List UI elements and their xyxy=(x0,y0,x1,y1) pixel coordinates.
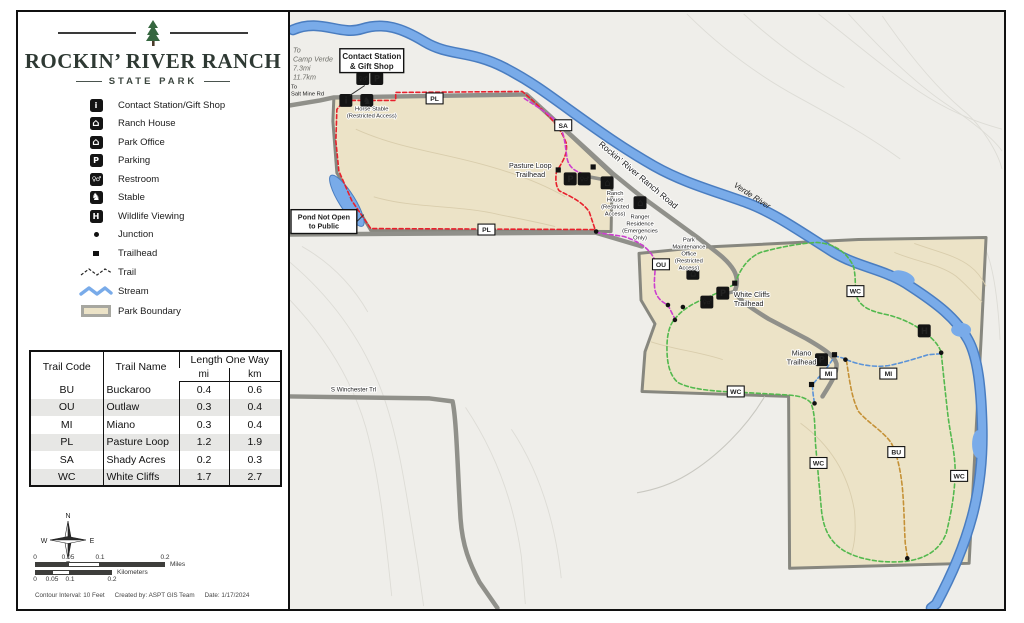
park-office-icon: ⌂ xyxy=(90,136,103,149)
contact-station-icon: i xyxy=(339,94,352,107)
svg-text:Contact Station: Contact Station xyxy=(342,52,401,61)
svg-text:PL: PL xyxy=(430,96,439,103)
junction-dot xyxy=(666,303,671,308)
legend-label: Park Office xyxy=(118,137,165,148)
legend-item-trail: Trail xyxy=(18,263,288,283)
junction-dot xyxy=(812,401,817,406)
svg-text:Only): Only) xyxy=(633,235,647,241)
svg-text:Camp Verde: Camp Verde xyxy=(293,56,333,64)
junction-dot xyxy=(594,229,599,234)
svg-text:MI: MI xyxy=(885,371,893,378)
svg-text:Residence: Residence xyxy=(626,222,653,228)
park-office-icon: ⌂ xyxy=(634,196,647,209)
trail-code: MI xyxy=(30,416,103,434)
trail-marker-wc: WC xyxy=(951,470,968,481)
trail-mi: 0.4 xyxy=(179,381,229,399)
legend-label: Park Boundary xyxy=(118,306,181,317)
trail-marker-wc: WC xyxy=(810,458,827,469)
created-by: Created by: ASPT GIS Team xyxy=(115,592,195,599)
table-row: SAShady Acres0.20.3 xyxy=(30,451,281,469)
scale-tick: 0.2 xyxy=(160,554,169,561)
scale-tick: 0 xyxy=(33,554,37,561)
scale-bar: 0 0.05 0.1 0.2 Miles Kilometers 0 0.05 0… xyxy=(18,554,290,588)
trail-name: Buckaroo xyxy=(103,381,179,399)
legend-label: Trailhead xyxy=(118,248,157,259)
stable-icon: ♞ xyxy=(360,94,373,107)
trail-name: Miano xyxy=(103,416,179,434)
trail-icon xyxy=(79,266,113,278)
table-row: PLPasture Loop1.21.9 xyxy=(30,434,281,452)
svg-text:to Public: to Public xyxy=(309,223,339,231)
trail-marker-mi: MI xyxy=(820,368,837,379)
park-map: ♀♂Pi♞P♀♂⌂⌂⌂P♀♂PH PLPLSAOUWCWCWCWCMIMIBU … xyxy=(290,12,1004,609)
legend-item-trailhead: Trailhead xyxy=(18,244,288,263)
svg-text:Office: Office xyxy=(681,251,696,257)
svg-text:H: H xyxy=(921,326,928,336)
legend-label: Trail xyxy=(118,267,136,278)
svg-text:⌂: ⌂ xyxy=(604,178,610,189)
restroom-icon: ♀♂ xyxy=(700,296,713,309)
svg-text:♀♂: ♀♂ xyxy=(580,176,589,183)
junction-dot xyxy=(905,556,910,561)
title-block: ROCKIN’ RIVER RANCH STATE PARK xyxy=(18,18,288,87)
svg-text:(Restricted Access): (Restricted Access) xyxy=(347,113,397,119)
trailhead-icon xyxy=(93,251,99,257)
compass-w: W xyxy=(41,538,48,545)
trail-table: Trail Code Trail Name Length One Way mi … xyxy=(29,350,282,487)
svg-text:WC: WC xyxy=(813,461,824,468)
parking-icon: P xyxy=(716,287,729,300)
legend-panel: ROCKIN’ RIVER RANCH STATE PARK i Contact… xyxy=(18,12,290,609)
white-cliffs-trailhead-label: White Cliffs xyxy=(734,291,771,299)
legend-label: Wildlife Viewing xyxy=(118,211,184,222)
trail-km: 0.6 xyxy=(229,381,281,399)
trail-marker-ou: OU xyxy=(652,259,669,270)
legend-label: Junction xyxy=(118,229,153,240)
to-camp-verde-label: To xyxy=(293,47,301,55)
svg-text:House: House xyxy=(607,198,624,204)
trail-km: 0.4 xyxy=(229,399,281,417)
trailhead-square xyxy=(591,164,596,169)
trail-code: WC xyxy=(30,469,103,487)
ranger-residence-label: Ranger xyxy=(631,215,650,221)
boundary-road xyxy=(290,233,642,247)
svg-text:(Restricted: (Restricted xyxy=(675,258,703,264)
miano-trailhead-label: Miano xyxy=(792,350,812,358)
trail-marker-wc: WC xyxy=(847,286,864,297)
legend-label: Ranch House xyxy=(118,118,176,129)
svg-text:PL: PL xyxy=(482,227,491,234)
parking-icon: P xyxy=(564,172,577,185)
table-row: OUOutlaw0.30.4 xyxy=(30,399,281,417)
restroom-icon: ♀♂ xyxy=(90,173,103,186)
tree-icon xyxy=(144,19,162,47)
legend-label: Stream xyxy=(118,286,149,297)
trail-name: Pasture Loop xyxy=(103,434,179,452)
svg-text:Trailhead: Trailhead xyxy=(787,359,817,367)
legend-item-park-boundary: Park Boundary xyxy=(18,302,288,322)
divider xyxy=(170,32,248,34)
svg-text:Salt Mine Rd: Salt Mine Rd xyxy=(291,91,324,97)
ranch-house-label: Ranch xyxy=(607,191,624,197)
trail-code: BU xyxy=(30,381,103,399)
junction-dot xyxy=(843,357,848,362)
trail-name: White Cliffs xyxy=(103,469,179,487)
wildlife-viewing-icon: H xyxy=(90,210,103,223)
horse-stable-label: Horse Stable xyxy=(355,106,388,112)
contour-interval: Contour Interval: 10 Feet xyxy=(35,592,105,599)
svg-text:Pond Not Open: Pond Not Open xyxy=(298,214,350,222)
trail-marker-mi: MI xyxy=(880,368,897,379)
trail-km: 2.7 xyxy=(229,469,281,487)
map-canvas: ♀♂Pi♞P♀♂⌂⌂⌂P♀♂PH PLPLSAOUWCWCWCWCMIMIBU … xyxy=(290,12,1004,609)
scale-tick: 0.1 xyxy=(95,554,104,561)
trail-mi: 0.2 xyxy=(179,451,229,469)
legend-item-stream: Stream xyxy=(18,282,288,302)
trailhead-square xyxy=(732,281,737,286)
park-title: ROCKIN’ RIVER RANCH xyxy=(18,49,288,74)
title-rule-row xyxy=(18,18,288,48)
svg-text:P: P xyxy=(374,74,380,84)
trail-code: SA xyxy=(30,451,103,469)
wildlife-viewing-icon: H xyxy=(918,324,931,337)
restroom-icon: ♀♂ xyxy=(356,72,369,85)
credits-line: Contour Interval: 10 Feet Created by: AS… xyxy=(35,592,249,599)
legend-label: Stable xyxy=(118,192,145,203)
trail-mi: 1.7 xyxy=(179,469,229,487)
restroom-icon: ♀♂ xyxy=(578,172,591,185)
trail-marker-wc: WC xyxy=(727,386,744,397)
winchester-trail-road xyxy=(290,396,497,608)
svg-text:& Gift Shop: & Gift Shop xyxy=(350,62,394,71)
park-subtitle: STATE PARK xyxy=(109,76,198,87)
pasture-loop-trailhead-label: Pasture Loop xyxy=(509,162,552,170)
legend-item-wildlife-viewing: H Wildlife Viewing xyxy=(18,207,288,226)
trail-code: OU xyxy=(30,399,103,417)
svg-text:OU: OU xyxy=(656,262,666,269)
map-sheet: ROCKIN’ RIVER RANCH STATE PARK i Contact… xyxy=(16,10,1006,611)
table-row: WCWhite Cliffs1.72.7 xyxy=(30,469,281,487)
to-salt-mine-label: To xyxy=(291,84,297,90)
svg-text:Trailhead: Trailhead xyxy=(516,171,546,179)
parking-icon: P xyxy=(815,353,828,366)
svg-text:Access): Access) xyxy=(679,265,700,271)
trail-marker-sa: SA xyxy=(555,120,572,131)
divider xyxy=(204,81,230,82)
legend-label: Parking xyxy=(118,155,150,166)
svg-text:BU: BU xyxy=(891,450,901,457)
trail-km: 0.4 xyxy=(229,416,281,434)
map-date: Date: 1/17/2024 xyxy=(205,592,250,599)
junction-dot xyxy=(681,305,686,310)
trail-table-body: BUBuckaroo0.40.6OUOutlaw0.30.4MIMiano0.3… xyxy=(30,381,281,486)
col-header-length: Length One Way xyxy=(179,351,281,368)
legend-item-stable: ♞ Stable xyxy=(18,189,288,208)
svg-text:P: P xyxy=(567,174,573,184)
compass-n: N xyxy=(65,513,70,520)
trail-name: Outlaw xyxy=(103,399,179,417)
scale-tick: 0.05 xyxy=(62,554,75,561)
trailhead-square xyxy=(809,382,814,387)
col-header-km: km xyxy=(229,368,281,381)
divider xyxy=(76,81,102,82)
divider xyxy=(58,32,136,34)
legend-item-park-office: ⌂ Park Office xyxy=(18,133,288,152)
trail-mi: 0.3 xyxy=(179,416,229,434)
svg-text:WC: WC xyxy=(850,289,861,296)
legend-item-junction: Junction xyxy=(18,226,288,245)
miles-label: Miles xyxy=(170,561,185,568)
kilometers-label: Kilometers xyxy=(117,569,148,576)
trail-name: Shady Acres xyxy=(103,451,179,469)
trail-km: 0.3 xyxy=(229,451,281,469)
stable-icon: ♞ xyxy=(90,191,103,204)
svg-text:7.3mi: 7.3mi xyxy=(293,65,311,73)
junction-dot xyxy=(939,350,944,355)
junction-dot xyxy=(673,318,678,323)
trail-marker-pl: PL xyxy=(426,93,443,104)
trail-mi: 0.3 xyxy=(179,399,229,417)
legend-item-restroom: ♀♂ Restroom xyxy=(18,170,288,189)
svg-text:(Emergencies: (Emergencies xyxy=(622,229,658,235)
trail-km: 1.9 xyxy=(229,434,281,452)
legend-list: i Contact Station/Gift Shop ⌂ Ranch Hous… xyxy=(18,96,288,321)
parking-icon: P xyxy=(370,72,383,85)
legend-item-contact-station: i Contact Station/Gift Shop xyxy=(18,96,288,115)
legend-label: Contact Station/Gift Shop xyxy=(118,100,225,111)
svg-text:WC: WC xyxy=(730,389,741,396)
contact-station-label: Contact Station & Gift Shop xyxy=(340,49,404,96)
parking-icon: P xyxy=(90,154,103,167)
svg-text:11.7km: 11.7km xyxy=(293,74,316,82)
scale-tick: 0.2 xyxy=(107,576,116,583)
svg-text:WC: WC xyxy=(953,473,964,480)
winchester-trail-label: S Winchester Trl xyxy=(331,386,376,393)
ranch-house-icon: ⌂ xyxy=(90,117,103,130)
scale-tick: 0.05 xyxy=(46,576,59,583)
stream-icon xyxy=(79,285,113,298)
trail-marker-pl: PL xyxy=(478,224,495,235)
legend-label: Restroom xyxy=(118,174,159,185)
svg-text:♀♂: ♀♂ xyxy=(702,299,711,306)
legend-item-ranch-house: ⌂ Ranch House xyxy=(18,115,288,134)
col-header-mi: mi xyxy=(179,368,229,381)
contact-station-icon: i xyxy=(90,99,103,112)
legend-item-parking: P Parking xyxy=(18,152,288,171)
trail-mi: 1.2 xyxy=(179,434,229,452)
col-header-name: Trail Name xyxy=(103,351,179,381)
svg-text:P: P xyxy=(819,355,825,365)
junction-icon xyxy=(94,232,99,237)
scale-tick: 0.1 xyxy=(65,576,74,583)
trail-code: PL xyxy=(30,434,103,452)
svg-text:Access): Access) xyxy=(605,212,626,218)
svg-text:MI: MI xyxy=(825,371,833,378)
trail-marker-bu: BU xyxy=(888,447,905,458)
svg-text:Trailhead: Trailhead xyxy=(734,300,764,308)
svg-text:(Restricted: (Restricted xyxy=(601,205,629,211)
ranch-house-icon: ⌂ xyxy=(601,176,614,189)
svg-text:P: P xyxy=(720,288,726,298)
park-maintenance-label: Park xyxy=(683,237,695,243)
compass-e: E xyxy=(90,538,95,545)
table-row: BUBuckaroo0.40.6 xyxy=(30,381,281,399)
trailhead-square xyxy=(832,352,837,357)
trailhead-square xyxy=(556,167,561,172)
scale-tick: 0 xyxy=(33,576,37,583)
svg-text:♞: ♞ xyxy=(363,96,371,107)
table-row: MIMiano0.30.4 xyxy=(30,416,281,434)
park-boundary-icon xyxy=(81,305,111,317)
svg-text:Maintenance: Maintenance xyxy=(672,244,705,250)
pond-label: Pond Not Open to Public xyxy=(291,210,364,234)
svg-text:SA: SA xyxy=(559,123,569,130)
col-header-code: Trail Code xyxy=(30,351,103,381)
svg-text:⌂: ⌂ xyxy=(637,198,643,209)
svg-text:♀♂: ♀♂ xyxy=(358,76,367,83)
